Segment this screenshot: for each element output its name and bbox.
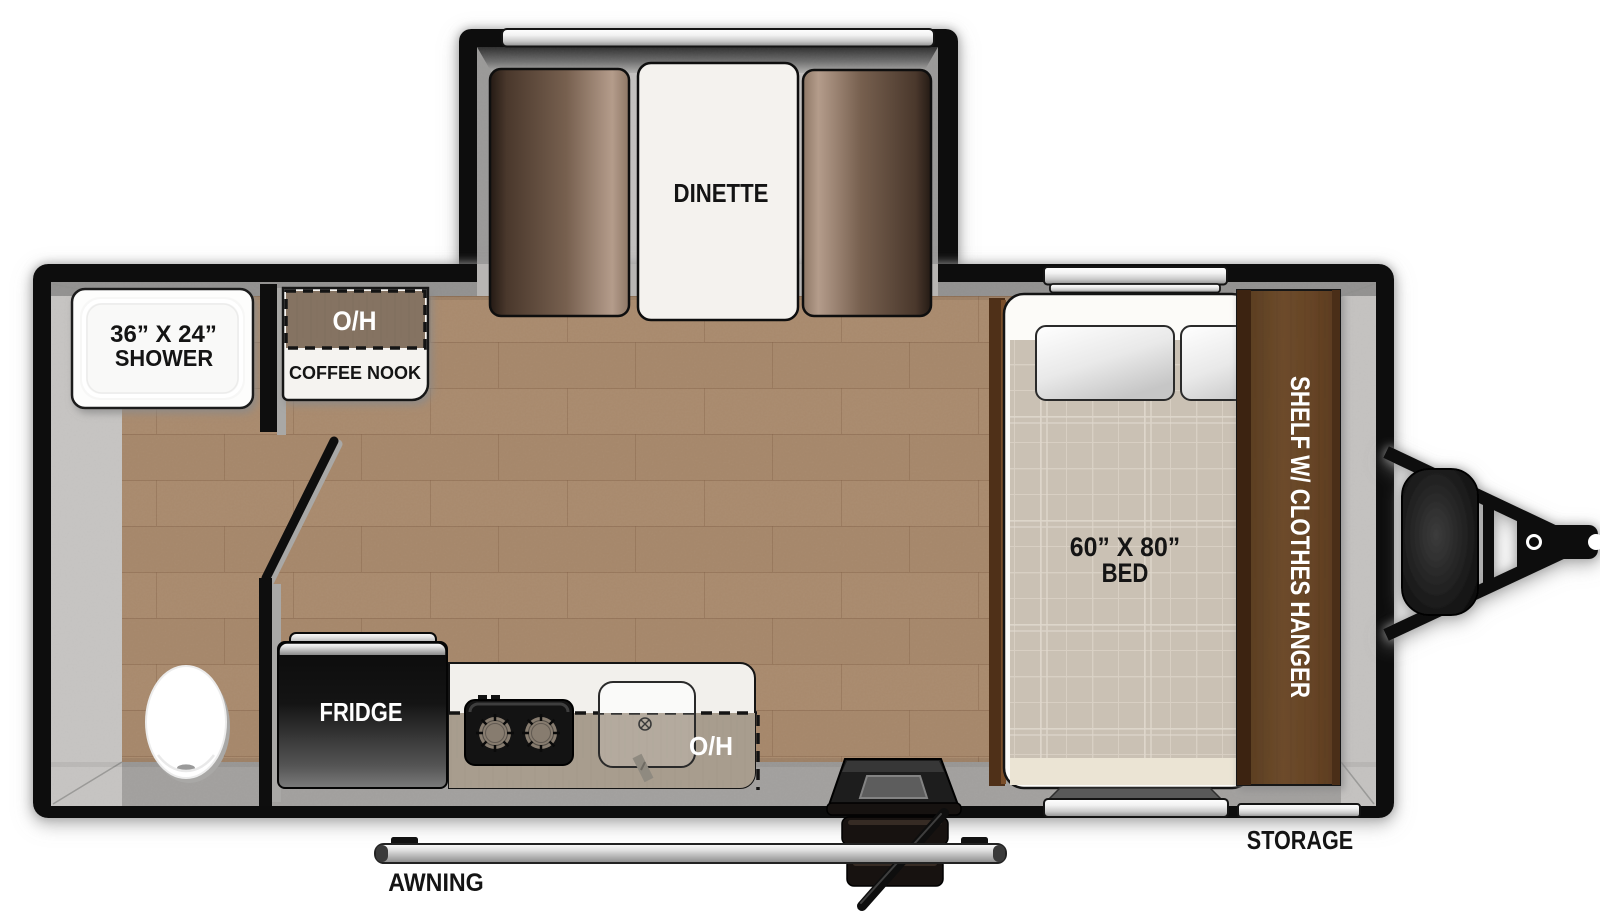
svg-text:SHOWER: SHOWER	[115, 345, 213, 371]
svg-text:SHELF W/ CLOTHES HANGER: SHELF W/ CLOTHES HANGER	[1284, 376, 1313, 698]
svg-text:COFFEE NOOK: COFFEE NOOK	[289, 363, 421, 383]
svg-text:60” X 80”: 60” X 80”	[1070, 533, 1180, 562]
svg-text:AWNING: AWNING	[388, 869, 484, 897]
svg-text:STORAGE: STORAGE	[1247, 826, 1353, 855]
svg-text:O/H: O/H	[333, 307, 377, 336]
svg-text:DINETTE: DINETTE	[674, 179, 769, 208]
svg-text:O/H: O/H	[689, 732, 733, 761]
svg-text:FRIDGE: FRIDGE	[320, 698, 403, 727]
svg-text:36” X 24”: 36” X 24”	[110, 321, 217, 348]
svg-text:BED: BED	[1102, 559, 1149, 589]
